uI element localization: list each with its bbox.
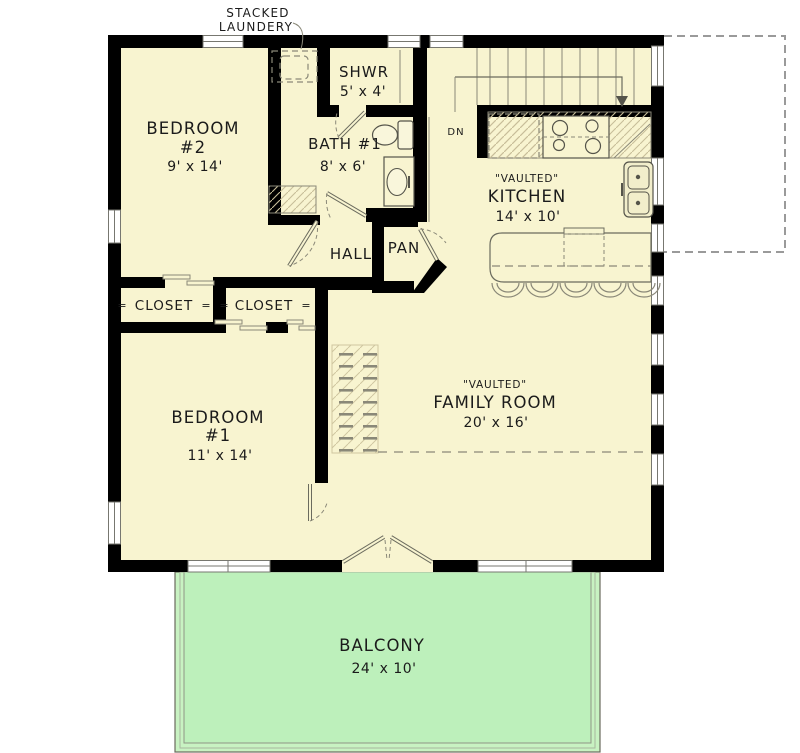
slider-mark: = <box>117 299 126 312</box>
wall-shower-south-a <box>317 105 339 117</box>
open-to-below-hatch <box>332 345 378 453</box>
shower-dims: 5' x 4' <box>340 84 386 100</box>
family-room-label: FAMILY ROOM <box>433 393 556 412</box>
family-room-ceiling-tag: "VAULTED" <box>463 379 527 391</box>
bedroom1-label: BEDROOM <box>171 408 264 427</box>
kitchen-island <box>490 228 651 282</box>
chase-hatch <box>269 186 316 213</box>
wall-closet-north-a <box>108 277 165 288</box>
slider-door-icon <box>187 281 214 285</box>
bedroom2-number: #2 <box>180 138 206 157</box>
balcony-label: BALCONY <box>339 636 425 655</box>
kitchen-ceiling-tag: "VAULTED" <box>495 173 559 185</box>
floor-plan-drawing: DN <box>0 0 800 753</box>
slider-door-icon <box>287 320 303 324</box>
stairs-down-label: DN <box>447 127 464 138</box>
slider-mark: = <box>301 299 310 312</box>
shower-label: SHWR <box>339 63 389 81</box>
slider-door-icon <box>240 326 267 330</box>
bedroom2-label: BEDROOM <box>146 119 239 138</box>
slider-door-icon <box>299 326 315 330</box>
bath1-label: BATH #1 <box>308 135 382 153</box>
wall-counter-stub <box>477 105 488 158</box>
bedroom2-dims: 9' x 14' <box>167 159 223 175</box>
slider-door-icon <box>215 320 242 324</box>
laundry-callout-line2: LAUNDERY <box>219 20 293 34</box>
wall-closet-north-b <box>213 277 325 288</box>
wall-closet-south-a <box>108 322 216 333</box>
bedroom1-dims: 11' x 14' <box>187 448 252 464</box>
balcony-dims: 24' x 10' <box>351 661 416 677</box>
closet-right-label: CLOSET <box>235 298 293 314</box>
stove-icon <box>543 116 609 158</box>
slider-mark: = <box>201 299 210 312</box>
wall-shower-south-b <box>366 105 427 117</box>
french-door-opening <box>342 560 433 572</box>
slider-mark: = <box>219 299 228 312</box>
family-room-dims: 20' x 16' <box>463 415 528 431</box>
balcony-deck <box>184 572 591 743</box>
vanity-sink-icon <box>384 157 414 206</box>
wall-bedroom1-east <box>315 277 328 483</box>
wall-bath-east <box>413 48 427 222</box>
bedroom1-number: #1 <box>205 426 231 445</box>
closet-left-label: CLOSET <box>135 298 193 314</box>
pantry-label: PAN <box>388 239 421 257</box>
kitchen-label: KITCHEN <box>488 187 567 206</box>
refrigerator-icon <box>489 114 539 158</box>
kitchen-dims: 14' x 10' <box>495 209 560 225</box>
bath1-dims: 8' x 6' <box>320 159 366 175</box>
wall-closet-south-b <box>266 322 288 333</box>
laundry-callout-line1: STACKED <box>226 6 289 20</box>
wall-north <box>108 35 664 48</box>
kitchen-sink-icon <box>622 162 653 217</box>
wall-hall-north <box>268 215 320 225</box>
wall-hall-south <box>328 277 372 290</box>
slider-door-icon <box>163 275 190 279</box>
floor-plan-page: DN <box>0 0 800 753</box>
balcony <box>175 566 600 752</box>
wall-pantry-south <box>372 281 414 293</box>
hall-label: HALL <box>330 245 372 263</box>
